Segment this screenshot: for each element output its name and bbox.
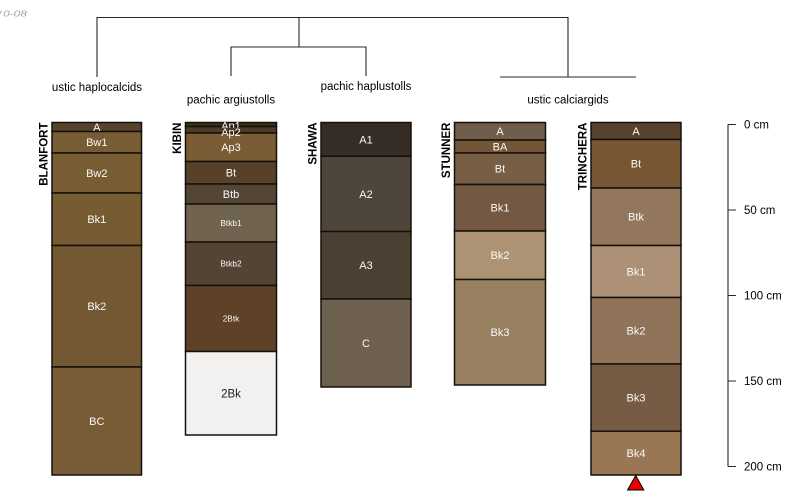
svg-text:pachic haplustolls: pachic haplustolls xyxy=(321,81,412,93)
svg-text:Bw2: Bw2 xyxy=(86,168,107,180)
svg-text:A3: A3 xyxy=(359,260,372,272)
svg-text:KIBIN: KIBIN xyxy=(172,123,184,154)
svg-text:Btkb2: Btkb2 xyxy=(220,259,242,269)
svg-text:Bk3: Bk3 xyxy=(491,327,510,339)
svg-text:100 cm: 100 cm xyxy=(744,291,782,303)
svg-text:TRINCHERA: TRINCHERA xyxy=(578,123,590,191)
svg-text:A1: A1 xyxy=(359,134,372,146)
svg-text:C: C xyxy=(362,338,370,350)
svg-text:150 cm: 150 cm xyxy=(744,376,782,388)
svg-text:200 cm: 200 cm xyxy=(744,462,782,474)
svg-text:Ap2: Ap2 xyxy=(221,127,241,139)
svg-text:Bk1: Bk1 xyxy=(491,203,510,215)
svg-text:A: A xyxy=(93,122,101,134)
svg-text:Bk3: Bk3 xyxy=(627,393,646,405)
svg-text:A: A xyxy=(632,126,640,138)
svg-text:ustic haplocalcids: ustic haplocalcids xyxy=(52,82,142,94)
svg-text:0 cm: 0 cm xyxy=(744,120,769,132)
svg-text:Bt: Bt xyxy=(495,164,505,176)
svg-text:Bk2: Bk2 xyxy=(627,326,646,338)
svg-text:STUNNER: STUNNER xyxy=(441,122,453,178)
svg-text:0-08: 0-08 xyxy=(3,9,27,18)
svg-text:Bk1: Bk1 xyxy=(627,267,646,279)
svg-text:Bk1: Bk1 xyxy=(87,214,106,226)
svg-text:BA: BA xyxy=(493,142,508,154)
svg-text:Btkb1: Btkb1 xyxy=(220,218,242,228)
svg-text:Btb: Btb xyxy=(223,189,240,201)
svg-text:Bk4: Bk4 xyxy=(627,448,646,460)
svg-text:2Btk: 2Btk xyxy=(223,314,240,324)
svg-text:2Bk: 2Bk xyxy=(221,388,241,400)
svg-text:A2: A2 xyxy=(359,189,372,201)
svg-text:Ap3: Ap3 xyxy=(221,142,241,154)
svg-text:Btk: Btk xyxy=(628,212,644,224)
svg-text:Bk2: Bk2 xyxy=(87,301,106,313)
svg-text:Bt: Bt xyxy=(631,159,641,171)
svg-text:Bw1: Bw1 xyxy=(86,137,107,149)
svg-text:pachic argiustolls: pachic argiustolls xyxy=(187,95,275,107)
svg-text:Bt: Bt xyxy=(226,168,236,180)
svg-text:A: A xyxy=(496,126,504,138)
svg-text:ustic calciargids: ustic calciargids xyxy=(527,95,608,107)
svg-text:SHAWA: SHAWA xyxy=(308,123,320,165)
svg-text:50 cm: 50 cm xyxy=(744,205,775,217)
svg-text:BLANFORT: BLANFORT xyxy=(39,123,51,186)
svg-text:BC: BC xyxy=(89,416,104,428)
svg-text:Bk2: Bk2 xyxy=(491,250,510,262)
